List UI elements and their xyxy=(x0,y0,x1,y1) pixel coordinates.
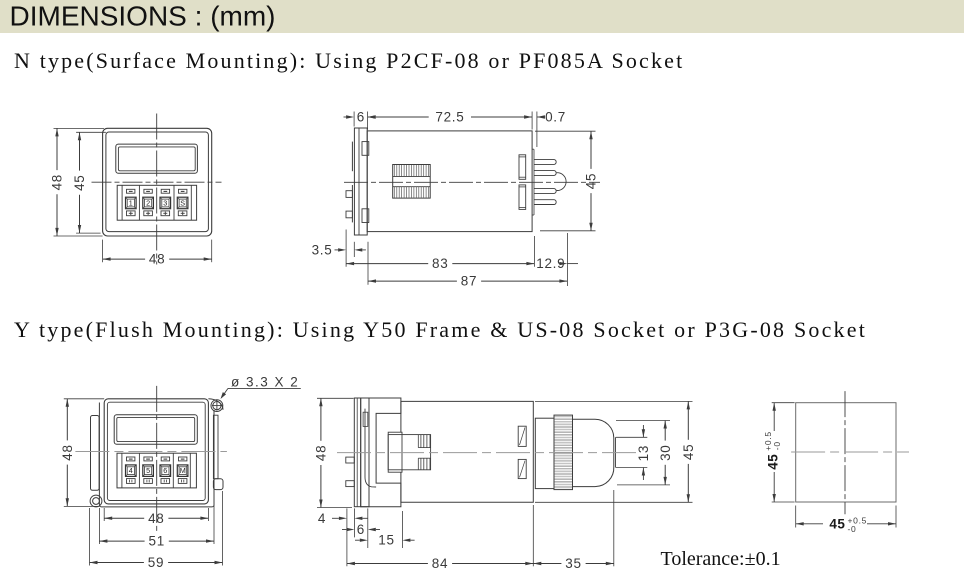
svg-text:ø 3.3 X 2: ø 3.3 X 2 xyxy=(231,375,299,390)
svg-text:48: 48 xyxy=(314,445,329,461)
svg-text:Tolerance:±0.1: Tolerance:±0.1 xyxy=(661,548,781,570)
svg-text:48: 48 xyxy=(149,252,165,267)
svg-text:59: 59 xyxy=(148,555,164,570)
svg-text:51: 51 xyxy=(148,534,164,549)
svg-text:13: 13 xyxy=(636,445,651,461)
svg-text:4: 4 xyxy=(129,466,133,475)
svg-text:35: 35 xyxy=(565,556,581,571)
svg-text:45: 45 xyxy=(681,444,696,460)
svg-text:45: 45 xyxy=(829,516,845,531)
svg-text:3.5: 3.5 xyxy=(312,242,333,257)
svg-text:48: 48 xyxy=(60,444,75,460)
svg-text:45: 45 xyxy=(766,454,781,470)
svg-text:5: 5 xyxy=(146,466,150,475)
svg-text:6: 6 xyxy=(163,466,167,475)
svg-text:0.7: 0.7 xyxy=(545,110,566,125)
svg-text:48: 48 xyxy=(50,174,65,190)
svg-text:84: 84 xyxy=(432,556,448,571)
svg-text:45: 45 xyxy=(584,173,599,189)
svg-text:72.5: 72.5 xyxy=(435,110,464,125)
svg-text:DIMENSIONS : (mm): DIMENSIONS : (mm) xyxy=(10,1,276,32)
svg-text:15: 15 xyxy=(378,533,394,548)
svg-text:2: 2 xyxy=(146,199,150,208)
svg-text:-0: -0 xyxy=(772,441,782,450)
svg-text:S: S xyxy=(180,199,185,208)
svg-text:6: 6 xyxy=(357,110,365,125)
svg-text:48: 48 xyxy=(148,511,164,526)
svg-text:45: 45 xyxy=(72,174,87,190)
svg-text:3: 3 xyxy=(163,199,167,208)
svg-text:30: 30 xyxy=(658,444,673,460)
svg-text:-0: -0 xyxy=(848,524,857,534)
svg-text:1: 1 xyxy=(129,199,133,208)
svg-text:M: M xyxy=(180,466,186,475)
svg-text:87: 87 xyxy=(461,274,477,289)
svg-text:4: 4 xyxy=(318,511,326,526)
svg-text:N type(Surface Mounting): Usin: N type(Surface Mounting): Using P2CF-08 … xyxy=(14,48,684,73)
svg-text:83: 83 xyxy=(432,256,448,271)
svg-text:6: 6 xyxy=(357,522,365,537)
svg-text:Y type(Flush Mounting): Using: Y type(Flush Mounting): Using Y50 Frame … xyxy=(14,317,867,342)
